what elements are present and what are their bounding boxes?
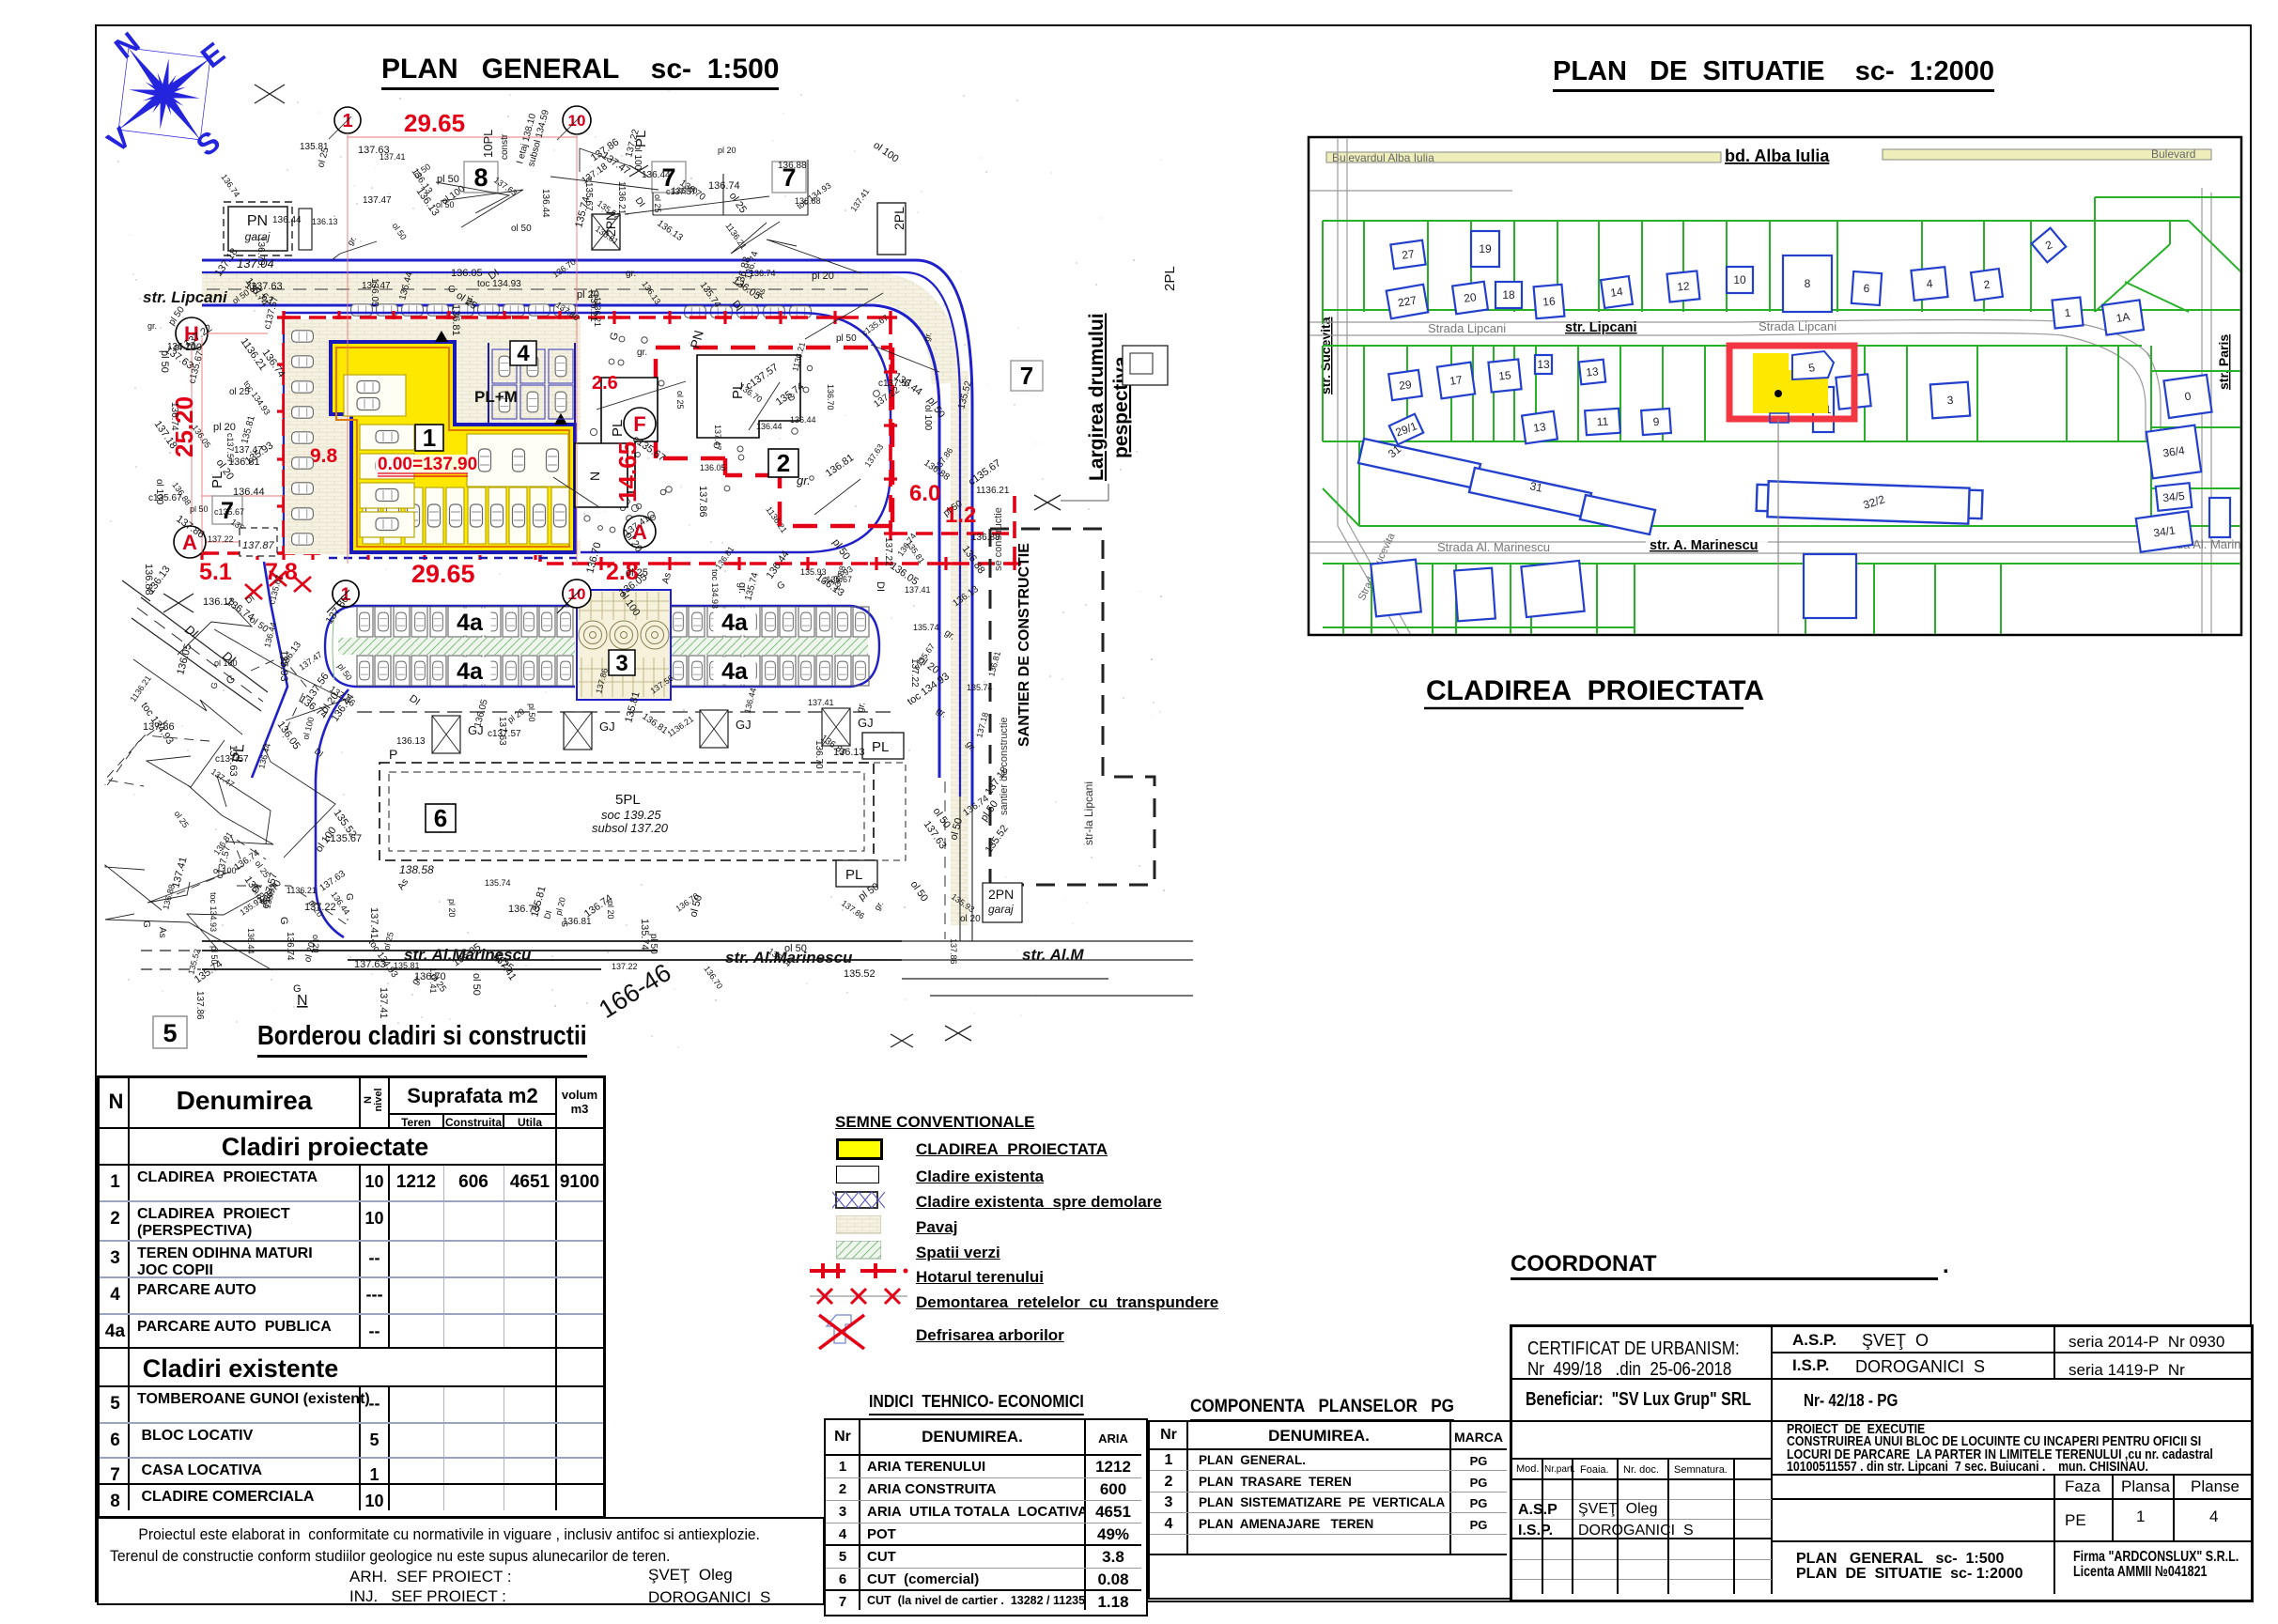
svg-text:0.00=137.90: 0.00=137.90	[378, 455, 477, 474]
svg-text:13: 13	[1532, 420, 1546, 435]
svg-text:137.63: 137.63	[318, 869, 348, 894]
svg-text:135.81: 135.81	[240, 414, 257, 445]
svg-text:15: 15	[1498, 368, 1512, 382]
svg-text:136.44: 136.44	[642, 170, 671, 180]
svg-text:136.70: 136.70	[256, 237, 266, 266]
svg-text:G: G	[278, 917, 289, 925]
svg-text:135.74: 135.74	[967, 683, 993, 692]
svg-text:18: 18	[1502, 288, 1515, 302]
svg-text:Strada Lipcani: Strada Lipcani	[1759, 319, 1836, 333]
svg-text:Strada Al. Marinescu: Strada Al. Marinescu	[1437, 540, 1550, 554]
svg-text:137.22: 137.22	[208, 534, 234, 544]
svg-text:137.41: 137.41	[170, 856, 189, 889]
svg-text:136.81: 136.81	[713, 545, 736, 571]
svg-text:135.74: 135.74	[573, 195, 592, 229]
svg-text:135.52: 135.52	[844, 968, 876, 980]
svg-text:136.44: 136.44	[233, 487, 265, 498]
svg-text:ol 25: ol 25	[381, 931, 395, 951]
svg-text:34/5: 34/5	[2162, 489, 2186, 504]
svg-text:str. Sucevita: str. Sucevita	[1318, 317, 1333, 394]
svg-text:ol 50: ol 50	[390, 221, 408, 241]
svg-text:137.41: 137.41	[808, 698, 834, 707]
svg-text:SANTIER DE CONSTRUCTIE: SANTIER DE CONSTRUCTIE	[1016, 543, 1032, 747]
svg-text:137.18: 137.18	[580, 162, 610, 187]
svg-text:2PL: 2PL	[1162, 266, 1178, 291]
svg-text:ol 50: ol 50	[511, 224, 532, 234]
svg-text:ol 50: ol 50	[471, 973, 482, 996]
svg-text:DI: DI	[243, 593, 256, 605]
svg-text:gr.: gr.	[626, 269, 636, 279]
svg-text:pl 50: pl 50	[648, 934, 659, 954]
svg-text:toc 134.93: toc 134.93	[477, 279, 521, 289]
svg-text:136.70: 136.70	[702, 964, 724, 990]
svg-text:136.44: 136.44	[756, 422, 783, 431]
svg-text:N: N	[587, 472, 602, 481]
svg-text:str. A. Marinescu: str. A. Marinescu	[1650, 538, 1759, 553]
svg-text:136.74: 136.74	[219, 172, 241, 198]
svg-text:1A: 1A	[2115, 310, 2131, 325]
svg-text:pl 50: pl 50	[190, 504, 209, 514]
svg-text:137.04: 137.04	[237, 256, 274, 271]
svg-text:29.65: 29.65	[404, 109, 465, 137]
svg-text:ol 25: ol 25	[675, 391, 685, 410]
svg-text:137.41: 137.41	[905, 585, 931, 595]
svg-text:pl 20: pl 20	[553, 896, 567, 916]
svg-text:136.44: 136.44	[790, 415, 816, 425]
svg-text:DI: DI	[633, 195, 647, 209]
svg-text:pl 50: pl 50	[335, 661, 353, 682]
svg-text:137.41: 137.41	[380, 152, 406, 162]
svg-text:13: 13	[1586, 364, 1600, 379]
svg-text:ol 100: ol 100	[154, 479, 164, 505]
svg-text:135.93: 135.93	[278, 650, 289, 682]
svg-text:1136.21: 1136.21	[593, 297, 602, 327]
svg-text:garaj: garaj	[988, 903, 1014, 916]
svg-text:GJ: GJ	[599, 719, 615, 734]
svg-text:toc 134.93: toc 134.93	[209, 892, 218, 932]
svg-text:4a: 4a	[721, 610, 749, 636]
svg-text:P: P	[389, 747, 397, 762]
svg-text:9.8: 9.8	[310, 445, 338, 467]
svg-text:V: V	[101, 119, 138, 159]
svg-text:8: 8	[1805, 277, 1811, 290]
svg-text:27: 27	[1401, 247, 1415, 262]
svg-text:2: 2	[777, 449, 790, 477]
svg-text:pl 50: pl 50	[159, 350, 170, 373]
svg-text:1: 1	[342, 111, 352, 131]
svg-text:2PL: 2PL	[891, 207, 907, 230]
svg-text:135.74: 135.74	[485, 878, 511, 888]
svg-text:pl 20: pl 20	[505, 706, 526, 724]
svg-text:E: E	[194, 36, 231, 75]
svg-text:toc 134.93: toc 134.93	[710, 569, 720, 609]
svg-text:137.47: 137.47	[297, 650, 323, 673]
svg-text:137.86: 137.86	[194, 991, 205, 1020]
svg-text:Bulevard: Bulevard	[2151, 147, 2195, 161]
svg-text:136.74: 136.74	[750, 269, 776, 278]
svg-text:gr.: gr.	[797, 473, 811, 487]
svg-text:136.81: 136.81	[450, 304, 461, 336]
svg-text:6: 6	[1863, 282, 1870, 295]
svg-text:137.41: 137.41	[378, 987, 389, 1019]
svg-text:6.0: 6.0	[909, 481, 940, 506]
svg-text:CLADIREA PROIECTATA: CLADIREA PROIECTATA	[1426, 675, 1764, 706]
svg-text:DI: DI	[407, 693, 422, 708]
svg-text:137.86: 137.86	[949, 938, 958, 965]
svg-text:c135.67: c135.67	[148, 493, 182, 503]
svg-text:G: G	[608, 331, 621, 341]
svg-text:ol 50: ol 50	[908, 879, 931, 904]
svg-text:137.47: 137.47	[713, 425, 722, 451]
svg-text:13: 13	[1537, 358, 1550, 371]
svg-text:136.44: 136.44	[540, 189, 550, 218]
svg-text:137.47: 137.47	[363, 195, 392, 206]
svg-text:Strada Lipcani: Strada Lipcani	[1428, 321, 1506, 335]
svg-text:str. Al.M: str. Al.M	[1022, 946, 1084, 964]
svg-text:GJ: GJ	[858, 716, 874, 730]
svg-text:1136.21: 1136.21	[976, 486, 1010, 496]
svg-text:bd. Alba Iulia: bd. Alba Iulia	[1725, 147, 1830, 165]
svg-text:PL: PL	[872, 739, 889, 755]
svg-text:As: As	[157, 927, 167, 938]
svg-text:1136.21: 1136.21	[616, 181, 627, 215]
svg-text:str. Paris: str. Paris	[2216, 334, 2231, 390]
svg-text:5.1: 5.1	[199, 559, 232, 585]
svg-text:ol 50: ol 50	[784, 943, 807, 954]
svg-text:135.52: 135.52	[984, 823, 1011, 855]
svg-text:gr.: gr.	[934, 705, 948, 719]
svg-text:136.70: 136.70	[414, 971, 446, 982]
svg-text:136.74: 136.74	[285, 932, 295, 961]
svg-text:N: N	[297, 993, 308, 1009]
svg-text:136.05: 136.05	[369, 278, 380, 307]
svg-text:138.58: 138.58	[399, 863, 434, 876]
svg-text:4a: 4a	[721, 658, 749, 685]
svg-text:3: 3	[1946, 394, 1954, 407]
svg-text:gr.: gr.	[345, 234, 358, 247]
svg-text:136.05: 136.05	[700, 463, 726, 472]
svg-text:6: 6	[434, 804, 447, 832]
svg-text:137.41: 137.41	[368, 907, 380, 939]
svg-text:137.22: 137.22	[612, 962, 638, 971]
svg-text:DI: DI	[542, 909, 553, 920]
svg-text:136.44: 136.44	[742, 687, 758, 714]
svg-text:14: 14	[1609, 285, 1623, 300]
svg-text:5: 5	[163, 1019, 177, 1047]
svg-text:29.65: 29.65	[411, 560, 475, 588]
svg-text:F: F	[633, 412, 645, 436]
svg-text:PL+M: PL+M	[474, 388, 518, 406]
svg-text:gr.: gr.	[872, 899, 885, 912]
svg-text:G: G	[448, 285, 456, 295]
svg-text:135.74: 135.74	[743, 571, 761, 602]
svg-text:toc 134.93: toc 134.93	[241, 379, 271, 416]
svg-text:136.13: 136.13	[312, 217, 338, 226]
svg-text:11: 11	[1596, 415, 1609, 429]
svg-text:136.70: 136.70	[814, 740, 824, 769]
svg-text:2.6: 2.6	[592, 373, 618, 394]
svg-text:ol 100: ol 100	[871, 140, 900, 165]
svg-text:ol 100: ol 100	[922, 405, 933, 431]
svg-text:136.70: 136.70	[826, 384, 835, 410]
svg-text:S: S	[190, 124, 226, 163]
svg-text:ol 50: ol 50	[436, 200, 455, 209]
svg-text:136.05: 136.05	[451, 268, 483, 279]
svg-text:pl 20: pl 20	[447, 899, 457, 918]
svg-text:str. Lipcani: str. Lipcani	[1565, 320, 1637, 335]
svg-text:5PL: 5PL	[615, 792, 641, 808]
svg-text:136.81: 136.81	[824, 452, 856, 479]
svg-text:135.81: 135.81	[394, 961, 420, 970]
svg-text:Largirea drumului: Largirea drumului	[1086, 313, 1108, 481]
svg-text:137.22: 137.22	[883, 537, 893, 566]
svg-text:137.18: 137.18	[974, 711, 990, 738]
svg-text:137.86: 137.86	[324, 594, 351, 626]
svg-text:136.13: 136.13	[396, 736, 426, 747]
svg-text:136.44: 136.44	[272, 215, 302, 225]
svg-text:ol 100: ol 100	[301, 716, 316, 740]
svg-text:16: 16	[1542, 294, 1557, 308]
svg-text:GJ: GJ	[736, 718, 752, 732]
svg-text:1136.21: 1136.21	[723, 221, 748, 251]
svg-text:DI: DI	[875, 581, 886, 592]
svg-text:str. Lipcani: str. Lipcani	[143, 288, 228, 306]
svg-text:N: N	[108, 25, 146, 66]
svg-text:PL: PL	[230, 743, 248, 763]
svg-text:20: 20	[1463, 290, 1477, 305]
svg-text:2PN: 2PN	[988, 887, 1014, 902]
svg-text:1136.21: 1136.21	[128, 673, 152, 704]
svg-text:136.13: 136.13	[833, 747, 865, 758]
svg-text:4a: 4a	[457, 658, 484, 685]
svg-text:pl 20: pl 20	[213, 422, 236, 433]
svg-text:17: 17	[1449, 373, 1463, 388]
svg-text:DI: DI	[313, 746, 325, 758]
svg-text:ol 20: ol 20	[960, 914, 981, 924]
svg-text:10: 10	[1733, 273, 1746, 286]
svg-text:PL: PL	[845, 867, 862, 883]
svg-text:8: 8	[473, 163, 488, 192]
svg-text:subsol 137.20: subsol 137.20	[592, 821, 669, 835]
svg-text:G: G	[775, 580, 787, 593]
svg-text:3: 3	[615, 651, 628, 676]
svg-text:12: 12	[1677, 279, 1691, 293]
svg-text:136.88: 136.88	[778, 161, 807, 171]
svg-text:ol 25: ol 25	[172, 809, 190, 829]
svg-text:1: 1	[423, 424, 436, 452]
svg-text:G: G	[344, 893, 354, 901]
svg-text:G: G	[209, 681, 219, 689]
svg-text:7: 7	[1020, 362, 1033, 390]
svg-text:ol 25: ol 25	[727, 191, 750, 215]
svg-text:c137.57: c137.57	[488, 729, 521, 739]
svg-text:G: G	[141, 920, 151, 928]
svg-text:137.87: 137.87	[242, 540, 275, 551]
svg-text:c135.67: c135.67	[214, 507, 244, 517]
svg-text:pl 20: pl 20	[812, 271, 834, 282]
svg-text:gr.: gr.	[637, 348, 647, 358]
svg-text:pl 20: pl 20	[718, 146, 736, 155]
svg-text:136.05: 136.05	[473, 698, 490, 729]
svg-text:pl 50: pl 50	[836, 333, 857, 344]
svg-text:10PL: 10PL	[481, 130, 495, 158]
svg-text:135.74: 135.74	[913, 623, 939, 632]
svg-text:19: 19	[1479, 242, 1492, 255]
svg-text:136.81: 136.81	[640, 711, 670, 736]
svg-text:1136.21: 1136.21	[665, 714, 695, 738]
svg-text:137.63: 137.63	[862, 442, 885, 469]
svg-text:gr.: gr.	[147, 321, 157, 331]
svg-text:14.65: 14.65	[613, 441, 642, 503]
svg-text:pl 50: pl 50	[527, 704, 536, 722]
svg-text:DI: DI	[182, 622, 201, 641]
svg-text:136.44: 136.44	[246, 928, 256, 954]
svg-text:1136.21: 1136.21	[764, 504, 788, 534]
svg-text:136.44: 136.44	[256, 742, 272, 769]
svg-text:str-la Lipcani: str-la Lipcani	[1082, 781, 1095, 845]
svg-text:constr: constr	[500, 133, 510, 160]
svg-text:137.22: 137.22	[304, 902, 336, 913]
svg-text:4a: 4a	[457, 610, 484, 636]
svg-text:As: As	[660, 572, 674, 585]
svg-text:c135.67: c135.67	[325, 833, 362, 844]
svg-text:As: As	[395, 877, 411, 892]
svg-text:PN: PN	[247, 213, 268, 229]
svg-text:soc 139.25: soc 139.25	[601, 808, 661, 822]
svg-text:29: 29	[1398, 378, 1412, 393]
svg-text:137.41: 137.41	[848, 187, 871, 213]
svg-text:136.74: 136.74	[169, 402, 179, 431]
svg-text:136.88: 136.88	[971, 533, 1000, 543]
svg-text:9: 9	[1652, 415, 1660, 428]
svg-text:137.86: 137.86	[697, 486, 708, 518]
svg-text:ol 100: ol 100	[174, 342, 202, 353]
svg-text:136.13: 136.13	[655, 218, 685, 243]
svg-text:137.63: 137.63	[354, 959, 386, 970]
svg-text:136.13: 136.13	[203, 596, 235, 608]
svg-text:4: 4	[517, 341, 530, 366]
svg-text:G: G	[225, 673, 238, 688]
svg-text:135.81: 135.81	[300, 142, 329, 152]
